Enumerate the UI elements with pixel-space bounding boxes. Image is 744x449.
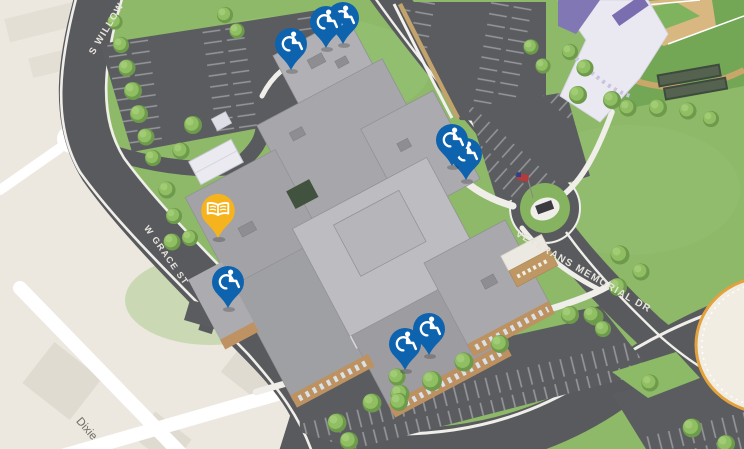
- tree-icon: [619, 99, 636, 116]
- tree-icon: [603, 91, 621, 109]
- tree-icon: [611, 246, 630, 265]
- tree-icon: [182, 230, 198, 246]
- tree-icon: [328, 414, 347, 433]
- tree-icon: [145, 150, 161, 166]
- tree-icon: [158, 181, 175, 198]
- tree-icon: [523, 39, 538, 54]
- tree-icon: [641, 374, 658, 391]
- tree-icon: [130, 105, 148, 123]
- tree-icon: [649, 99, 667, 117]
- tree-icon: [683, 419, 702, 438]
- tree-icon: [137, 128, 154, 145]
- tree-icon: [535, 58, 550, 73]
- tree-icon: [363, 394, 382, 413]
- tree-icon: [576, 59, 593, 76]
- tree-icon: [217, 7, 233, 23]
- tree-icon: [595, 321, 611, 337]
- tree-icon: [632, 263, 649, 280]
- tree-icon: [118, 59, 135, 76]
- tree-icon: [422, 371, 442, 391]
- tree-icon: [166, 208, 182, 224]
- tree-icon: [390, 393, 408, 411]
- tree-icon: [113, 37, 129, 53]
- tree-icon: [124, 82, 142, 100]
- tree-icon: [561, 306, 579, 324]
- tree-icon: [703, 111, 719, 127]
- tree-icon: [184, 116, 202, 134]
- tree-icon: [583, 306, 600, 323]
- campus-map-viewport[interactable]: S WILLOW W GRACE ST VETERANS MEMORIAL DR…: [0, 0, 744, 449]
- tree-icon: [172, 142, 189, 159]
- tree-icon: [229, 23, 244, 38]
- tree-icon: [679, 102, 696, 119]
- tree-icon: [562, 44, 578, 60]
- tree-icon: [491, 335, 509, 353]
- tree-icon: [569, 86, 587, 104]
- tree-icon: [455, 353, 474, 372]
- campus-map: S WILLOW W GRACE ST VETERANS MEMORIAL DR…: [0, 0, 744, 449]
